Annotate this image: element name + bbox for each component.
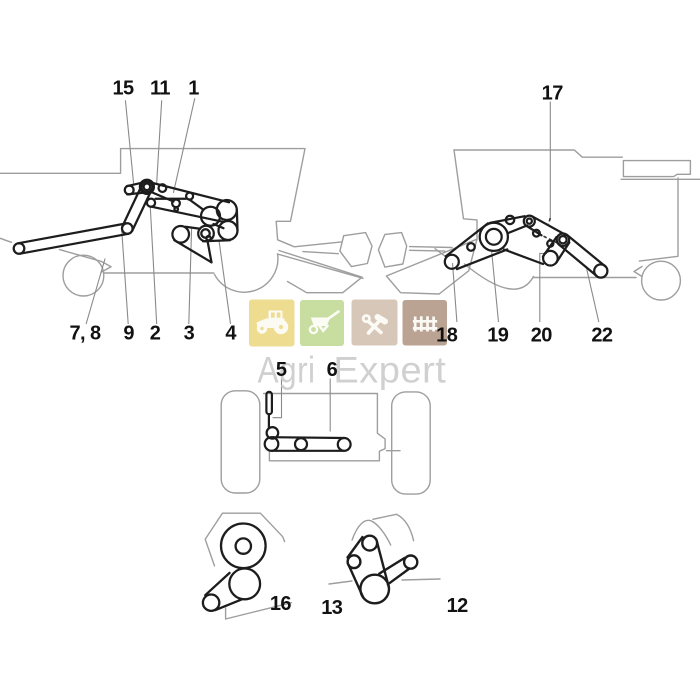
svg-text:9: 9 [123,323,134,345]
svg-text:Expert: Expert [333,350,446,391]
svg-text:Agri: Agri [258,350,316,391]
svg-text:12: 12 [447,595,469,617]
svg-text:6: 6 [327,359,338,381]
svg-text:13: 13 [321,597,343,619]
svg-text:7, 8: 7, 8 [70,323,101,345]
svg-text:18: 18 [436,325,458,347]
svg-text:11: 11 [150,78,170,100]
svg-text:15: 15 [112,78,134,100]
svg-text:20: 20 [531,325,553,347]
svg-text:3: 3 [184,323,195,345]
svg-text:17: 17 [542,83,564,105]
svg-text:22: 22 [591,325,613,347]
svg-text:2: 2 [150,323,161,345]
svg-text:1: 1 [188,78,199,100]
svg-text:4: 4 [225,323,237,345]
svg-text:19: 19 [487,325,509,347]
svg-text:16: 16 [270,593,292,615]
svg-text:5: 5 [276,359,287,381]
